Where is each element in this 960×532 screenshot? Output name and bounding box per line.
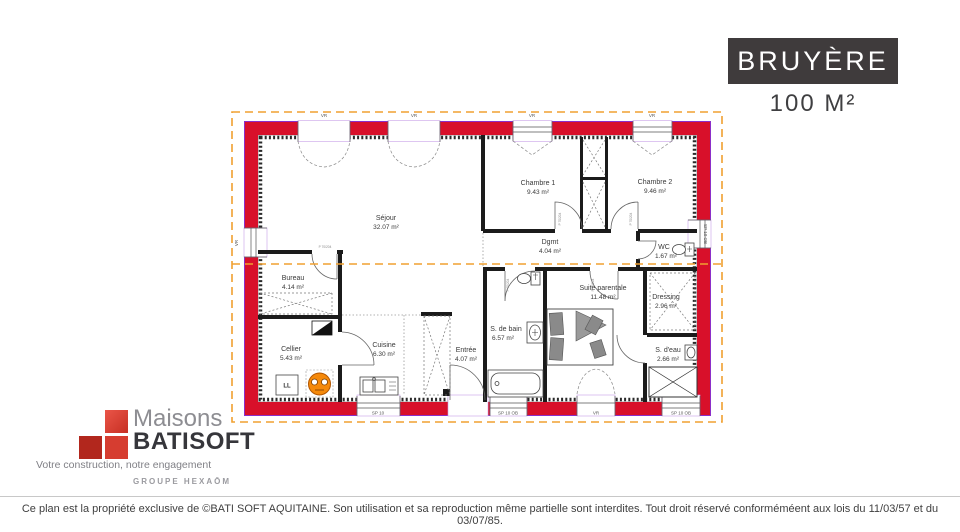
room-cuisine: Cuisine [372, 342, 395, 349]
svg-text:P 70/204: P 70/204 [558, 212, 562, 225]
svg-text:P 70/204: P 70/204 [319, 245, 332, 249]
bed-suite [547, 309, 613, 365]
sp10ob-label: SP 10 OB [703, 224, 708, 244]
svg-text:11.48 m²: 11.48 m² [590, 294, 616, 301]
svg-text:4.14 m²: 4.14 m² [282, 284, 305, 291]
svg-text:4.04 m²: 4.04 m² [539, 248, 562, 255]
svg-text:4.07 m²: 4.07 m² [455, 356, 478, 363]
sink-shower-room [685, 345, 697, 360]
svg-text:6.57 m²: 6.57 m² [492, 335, 515, 342]
svg-text:32.07 m²: 32.07 m² [373, 224, 399, 231]
room-entree: Entrée [456, 347, 477, 354]
svg-text:P 70/204: P 70/204 [506, 278, 510, 291]
kitchen-sink [360, 377, 398, 395]
vr-label: VR [234, 239, 239, 246]
sp10ob-label: SP 10 OB [498, 411, 518, 416]
bathtub [488, 370, 543, 397]
footer-copyright: Ce plan est la propriété exclusive de ©B… [0, 503, 960, 527]
shower [649, 367, 697, 397]
room-dgmt: Dgmt [542, 239, 559, 246]
svg-text:9.43 m²: 9.43 m² [527, 189, 550, 196]
logo-square-top [105, 410, 128, 433]
sp10-label: SP 10 [372, 411, 385, 416]
room-wc: WC [658, 244, 670, 251]
sink-bathroom [527, 322, 543, 343]
sp10ob-label: SP 10 OB [671, 411, 691, 416]
room-chambre1: Chambre 1 [521, 180, 556, 187]
floor-plan: LL Séjour 32.07 m² Chambre 1 9.43 m² Cha… [228, 103, 728, 428]
room-dressing: Dressing [652, 294, 680, 301]
plan-total-area: 100 M² [728, 90, 898, 118]
svg-text:9.46 m²: 9.46 m² [644, 188, 667, 195]
room-suite: Suite parentale [579, 285, 626, 292]
plan-title-box: BRUYÈRE [728, 38, 898, 84]
washing-machine-label: LL [283, 384, 291, 390]
logo-square-bottom-left [79, 436, 102, 459]
svg-text:2.96 m²: 2.96 m² [655, 303, 678, 310]
svg-text:6.30 m²: 6.30 m² [373, 351, 396, 358]
vr-label: VR [321, 113, 328, 118]
logo-group-hexaom: GROUPE HEXAŌM [133, 477, 231, 486]
vr-label: VR [593, 411, 600, 416]
svg-text:2.66 m²: 2.66 m² [657, 356, 680, 363]
room-sdb: S. de bain [490, 326, 522, 333]
vr-label: VR [529, 113, 536, 118]
logo-square-bottom-right [105, 436, 128, 459]
room-sejour: Séjour [376, 215, 397, 222]
room-cellier: Cellier [281, 346, 302, 353]
room-chambre2: Chambre 2 [638, 179, 673, 186]
svg-text:P 70/204: P 70/204 [629, 212, 633, 225]
room-bureau: Bureau [282, 275, 305, 282]
logo-batisoft: BATISOFT [133, 428, 255, 456]
svg-text:1.67 m²: 1.67 m² [655, 253, 678, 260]
room-sdeau: S. d'eau [655, 347, 681, 354]
logo-tagline: Votre construction, notre engagement [36, 459, 211, 471]
vr-label: VR [649, 113, 656, 118]
plan-title: BRUYÈRE [737, 46, 889, 77]
footer-separator [0, 496, 960, 497]
svg-text:P 70/204: P 70/204 [591, 278, 595, 291]
svg-text:5.43 m²: 5.43 m² [280, 355, 303, 362]
vr-label: VR [411, 113, 418, 118]
